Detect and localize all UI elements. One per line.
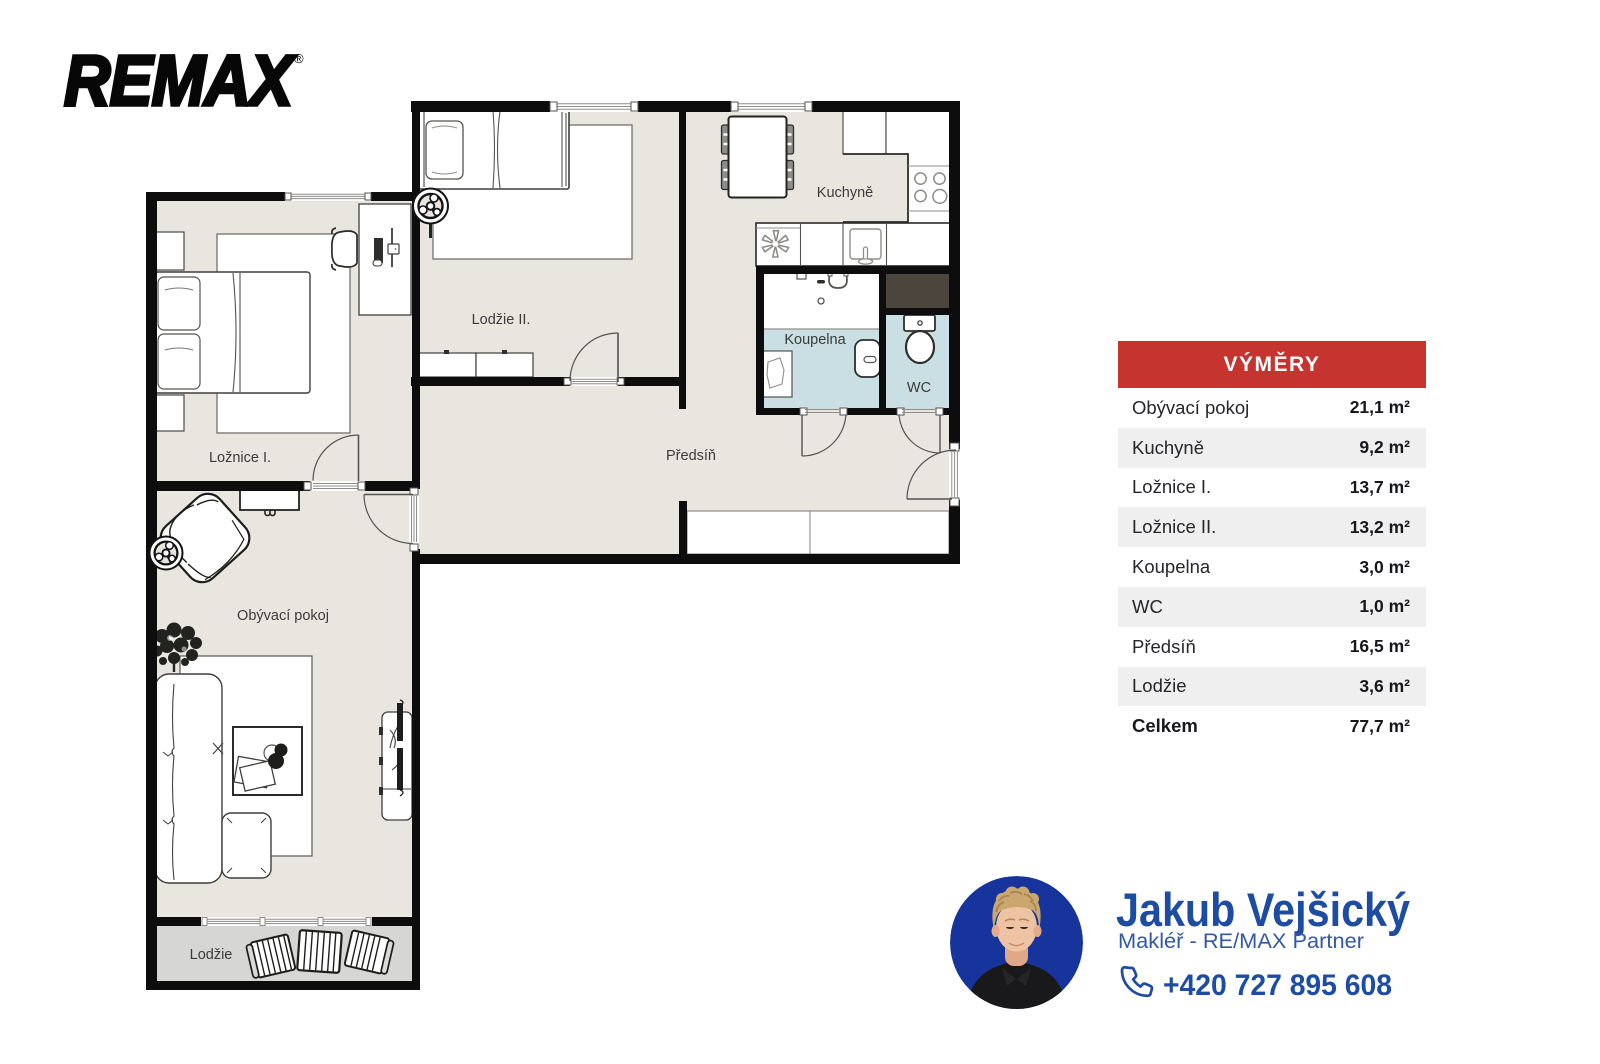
svg-text:Ložnice I.: Ložnice I. <box>209 450 271 466</box>
svg-text:Jakub Vejšický: Jakub Vejšický <box>1116 883 1410 936</box>
svg-text:Makléř - RE/MAX Partner: Makléř - RE/MAX Partner <box>1118 930 1364 953</box>
svg-text:Lodžie: Lodžie <box>190 947 233 963</box>
svg-text:WC: WC <box>907 380 931 396</box>
svg-text:+420 727 895 608: +420 727 895 608 <box>1163 969 1392 1002</box>
svg-text:Předsíň: Předsíň <box>666 448 716 464</box>
svg-text:Lodžie II.: Lodžie II. <box>472 312 531 328</box>
svg-text:Koupelna: Koupelna <box>784 332 846 348</box>
svg-text:Obývací pokoj: Obývací pokoj <box>237 608 329 624</box>
svg-text:Kuchyně: Kuchyně <box>817 185 873 201</box>
